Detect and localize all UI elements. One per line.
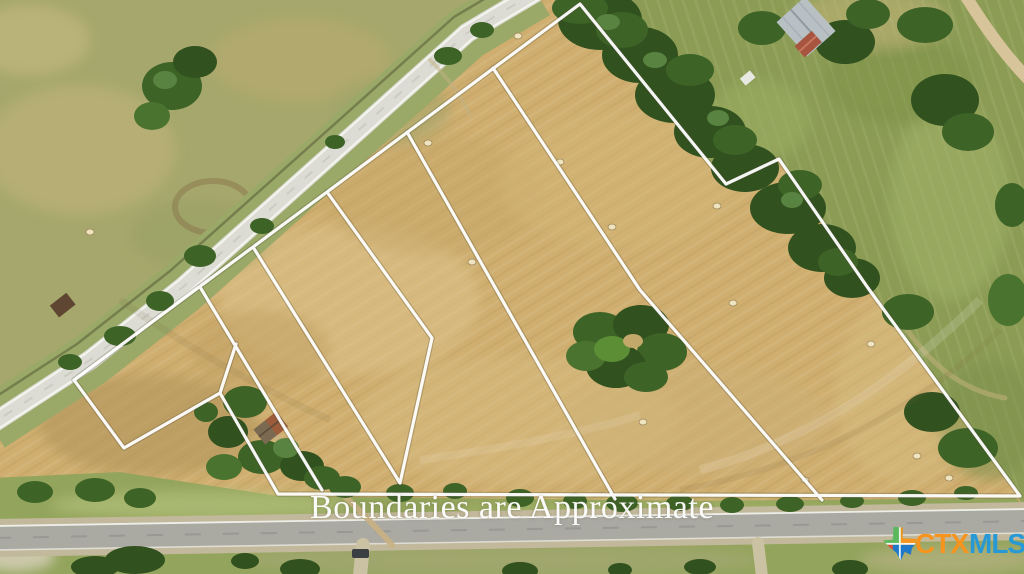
- car: [352, 549, 369, 558]
- texas-state-icon: [882, 526, 918, 562]
- logo-text-mls: MLS: [969, 528, 1024, 560]
- ctxmls-logo: CTX MLS: [882, 524, 1024, 564]
- logo-text-ctx: CTX: [915, 528, 968, 560]
- aerial-listing-photo: Boundaries are Approximate CTX MLS: [0, 0, 1024, 574]
- aerial-photo-scene: [0, 0, 1024, 574]
